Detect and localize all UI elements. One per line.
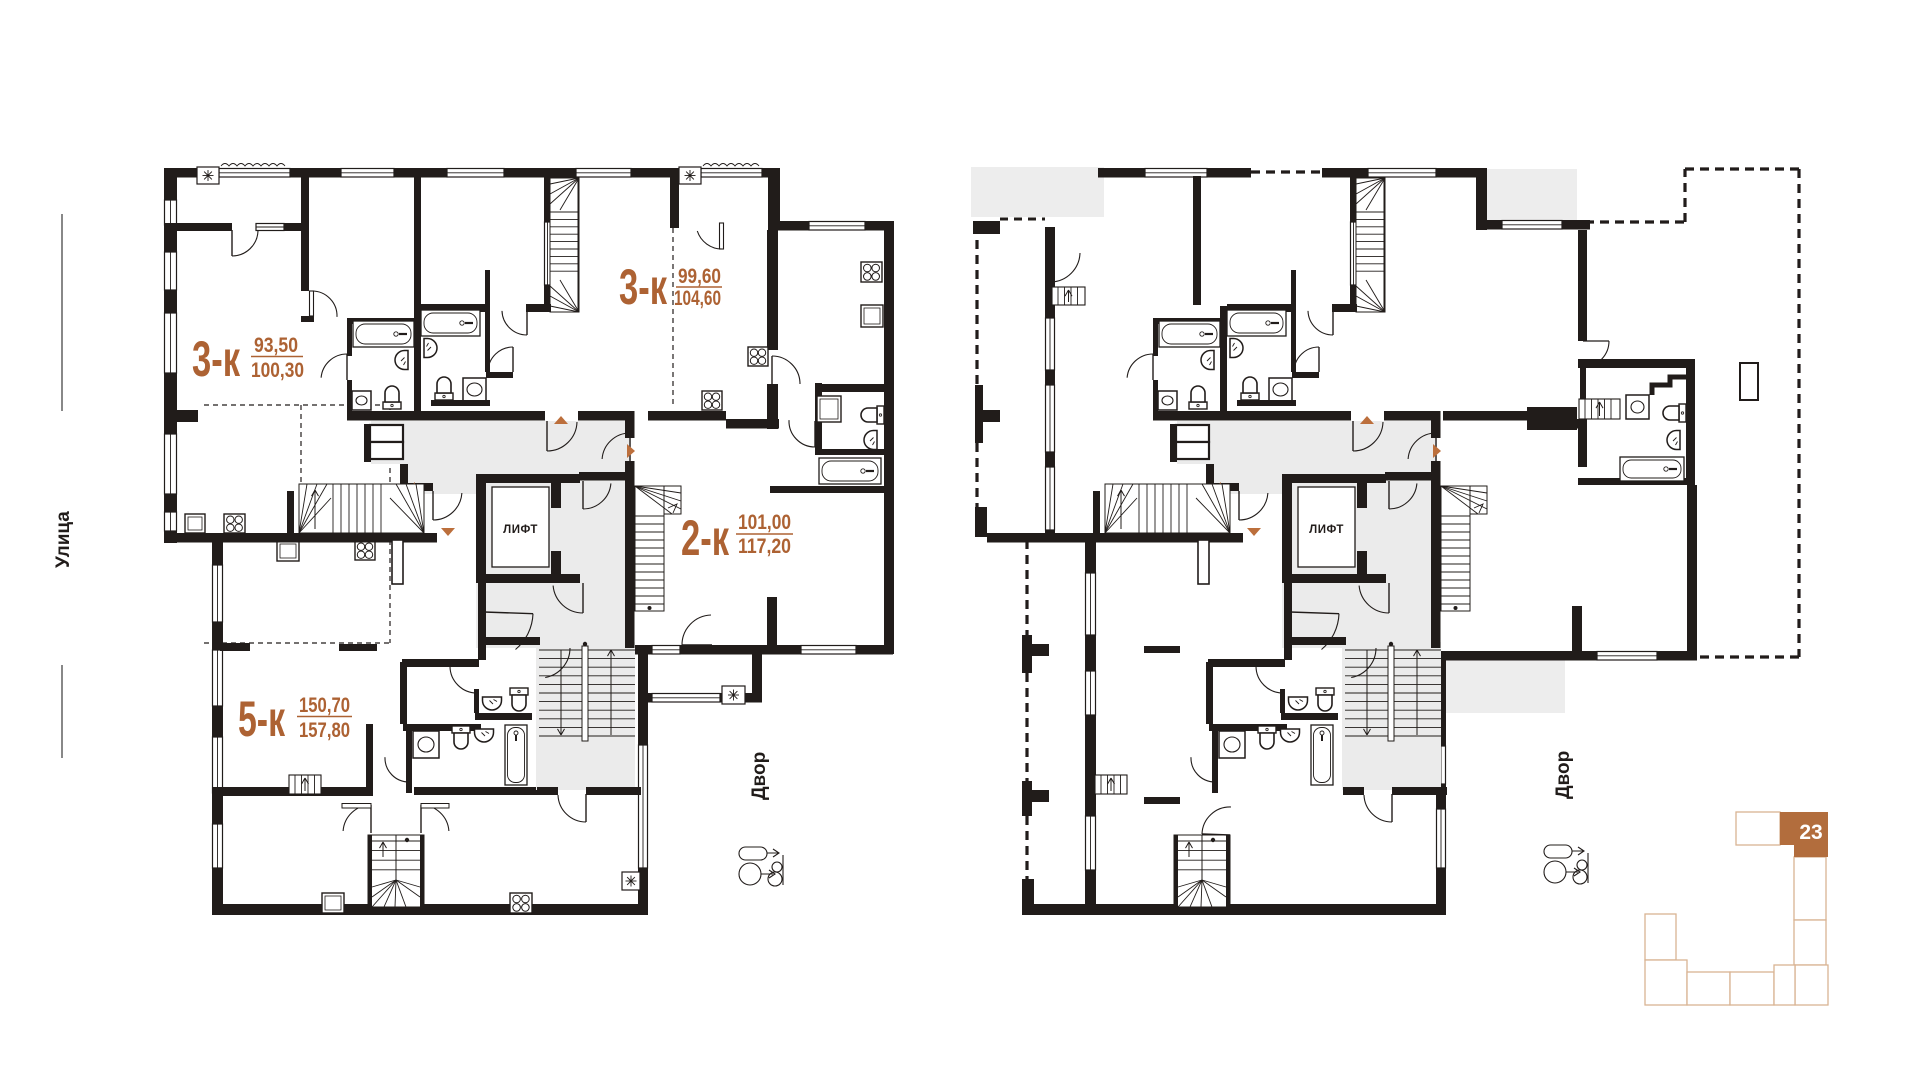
svg-text:23: 23 [1799, 821, 1822, 844]
svg-text:ЛИФТ: ЛИФТ [1309, 524, 1344, 536]
svg-text:157,80: 157,80 [299, 719, 350, 742]
svg-text:93,50: 93,50 [254, 334, 298, 357]
svg-text:101,00: 101,00 [738, 511, 791, 534]
svg-text:99,60: 99,60 [678, 265, 721, 288]
svg-text:117,20: 117,20 [738, 535, 791, 558]
svg-text:3-к: 3-к [619, 259, 668, 315]
svg-text:Двор: Двор [1553, 751, 1574, 799]
svg-text:2-к: 2-к [681, 510, 730, 566]
svg-text:5-к: 5-к [238, 691, 286, 747]
svg-text:ЛИФТ: ЛИФТ [503, 524, 538, 536]
svg-text:Двор: Двор [749, 752, 770, 800]
svg-text:100,30: 100,30 [251, 359, 304, 382]
svg-text:Улица: Улица [53, 511, 74, 568]
svg-text:3-к: 3-к [192, 331, 241, 387]
svg-text:150,70: 150,70 [299, 694, 350, 717]
svg-text:104,60: 104,60 [674, 287, 721, 310]
